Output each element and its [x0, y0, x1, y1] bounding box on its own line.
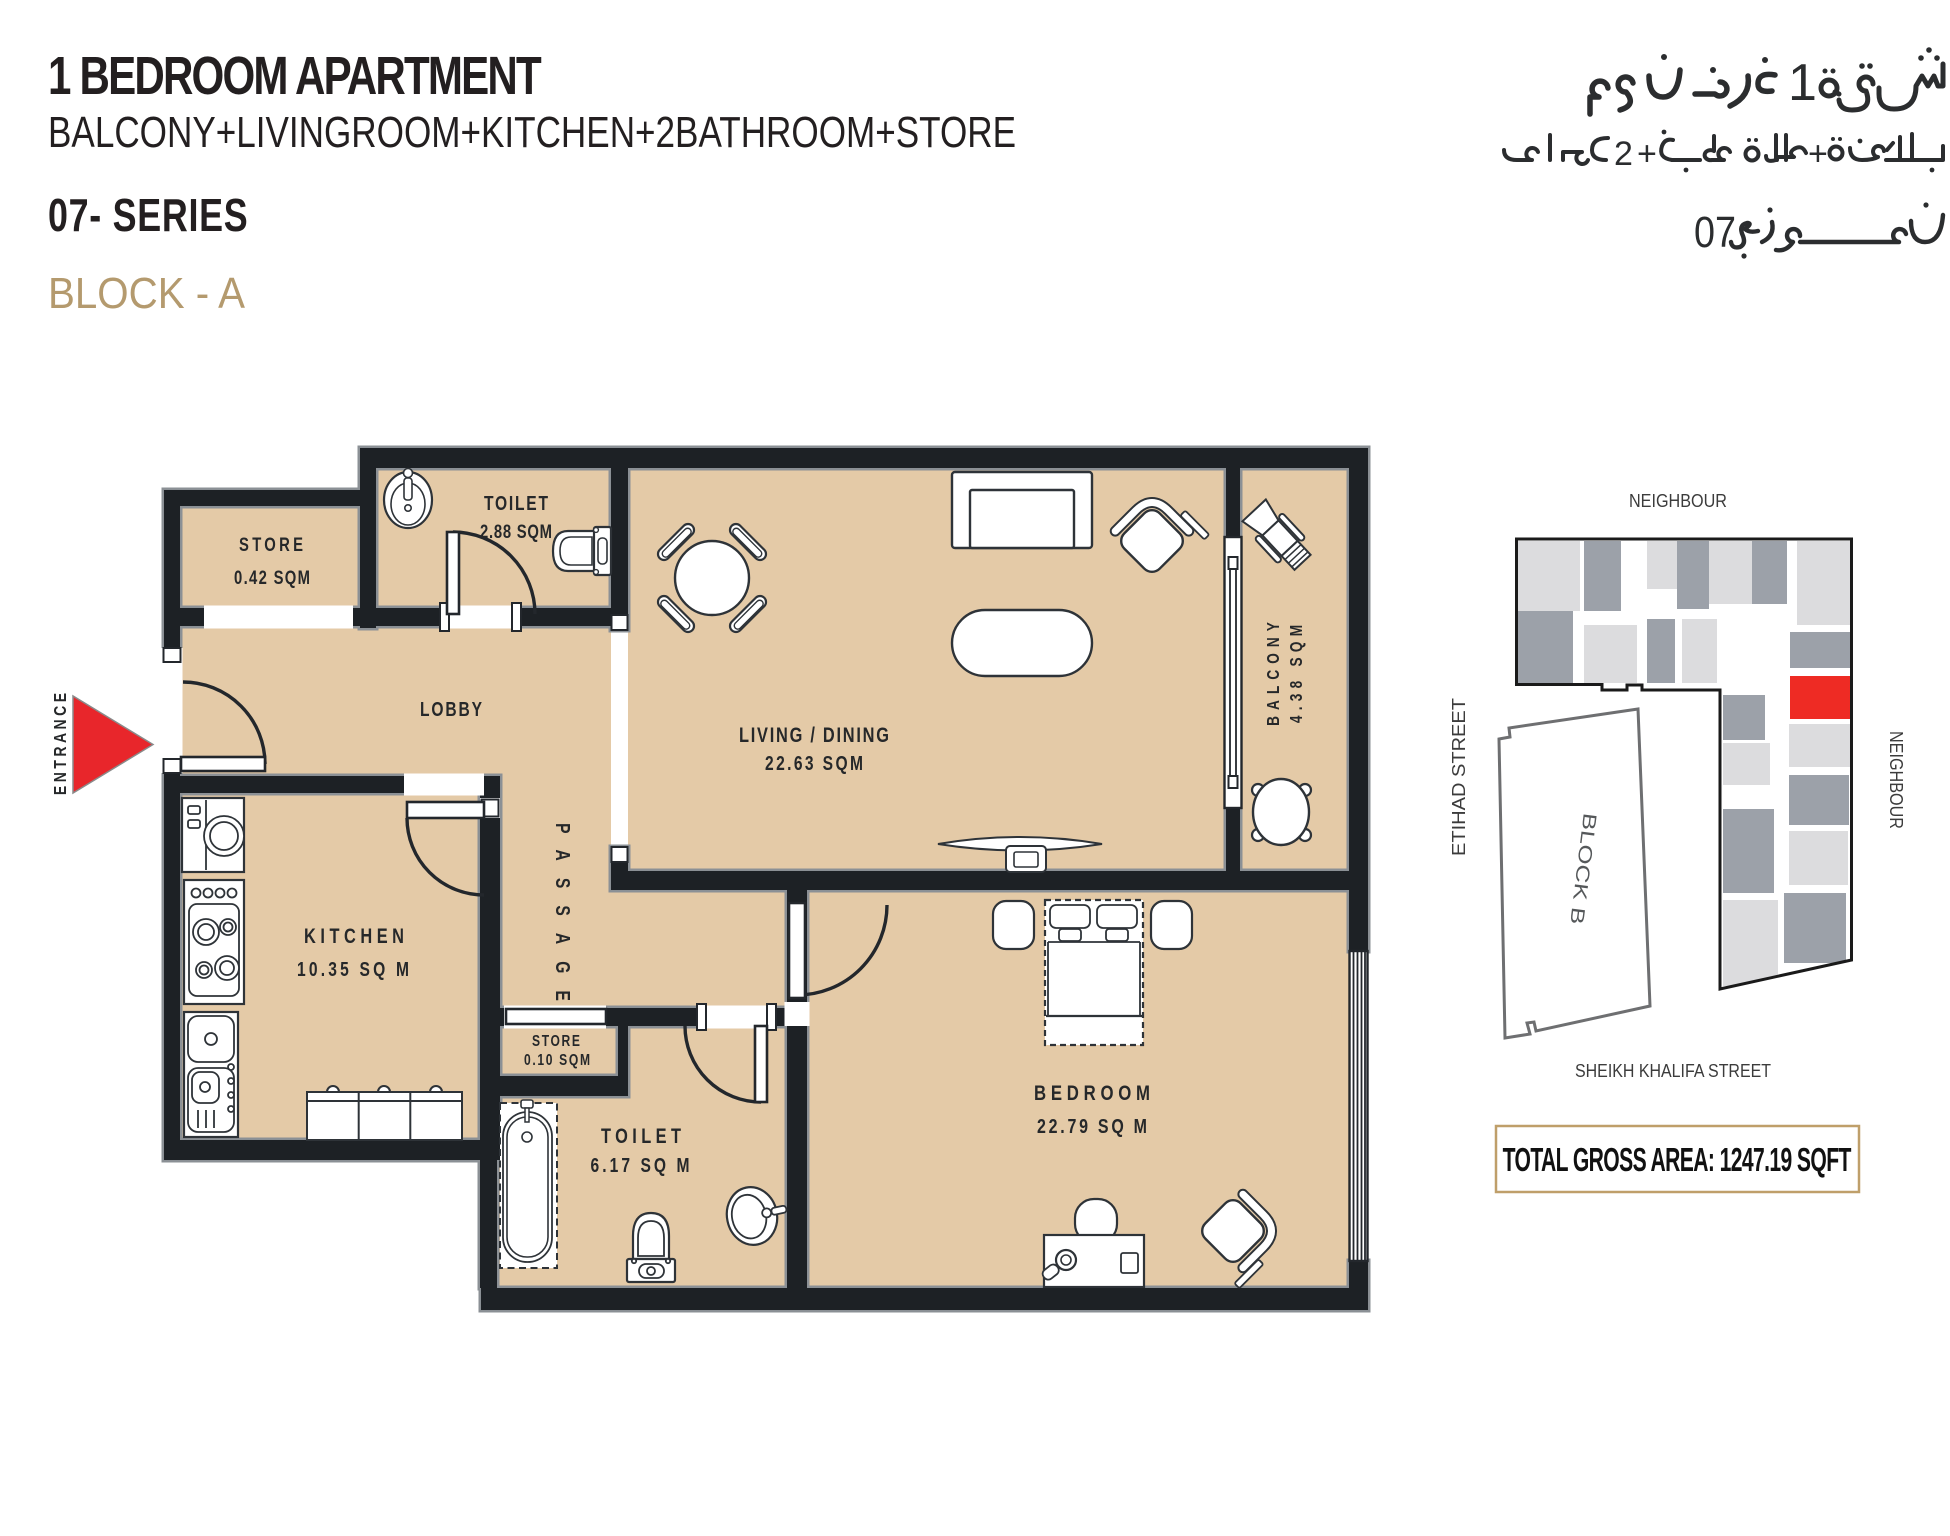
svg-text:NEIGHBOUR: NEIGHBOUR [1629, 490, 1727, 511]
svg-text:1: 1 [1788, 54, 1817, 112]
svg-text:+: + [1808, 135, 1828, 173]
svg-text:ETIHAD STREET: ETIHAD STREET [1448, 698, 1469, 856]
svg-text:2.88 SQM: 2.88 SQM [480, 521, 552, 542]
svg-text:1 BEDROOM APARTMENT: 1 BEDROOM APARTMENT [48, 46, 542, 106]
svg-text:STORE: STORE [532, 1032, 580, 1050]
svg-text:10.35 SQ M: 10.35 SQ M [297, 958, 409, 980]
svg-text:2: 2 [1614, 135, 1633, 173]
svg-text:07- SERIES: 07- SERIES [48, 190, 248, 241]
svg-text:LOBBY: LOBBY [420, 698, 482, 720]
svg-text:BALCONY+LIVINGROOM+KITCHEN+2BA: BALCONY+LIVINGROOM+KITCHEN+2BATHROOM+STO… [48, 108, 1016, 157]
svg-text:SHEIKH KHALIFA STREET: SHEIKH KHALIFA STREET [1575, 1060, 1771, 1081]
svg-text:0.42 SQM: 0.42 SQM [234, 567, 310, 588]
svg-text:BALCONY: BALCONY [1265, 622, 1284, 726]
svg-text:NEIGHBOUR: NEIGHBOUR [1886, 731, 1907, 829]
svg-text:STORE: STORE [239, 534, 303, 555]
svg-text:07: 07 [1694, 208, 1736, 257]
svg-text:0.10 SQM: 0.10 SQM [524, 1051, 590, 1069]
svg-text:LIVING / DINING: LIVING / DINING [739, 723, 889, 746]
svg-text:TOTAL GROSS AREA: 1247.19 SQFT: TOTAL GROSS AREA: 1247.19 SQFT [1503, 1141, 1852, 1178]
svg-text:BLOCK - A: BLOCK - A [48, 269, 246, 318]
svg-text:22.79 SQ M: 22.79 SQ M [1037, 1114, 1147, 1137]
svg-text:+: + [1637, 135, 1657, 173]
